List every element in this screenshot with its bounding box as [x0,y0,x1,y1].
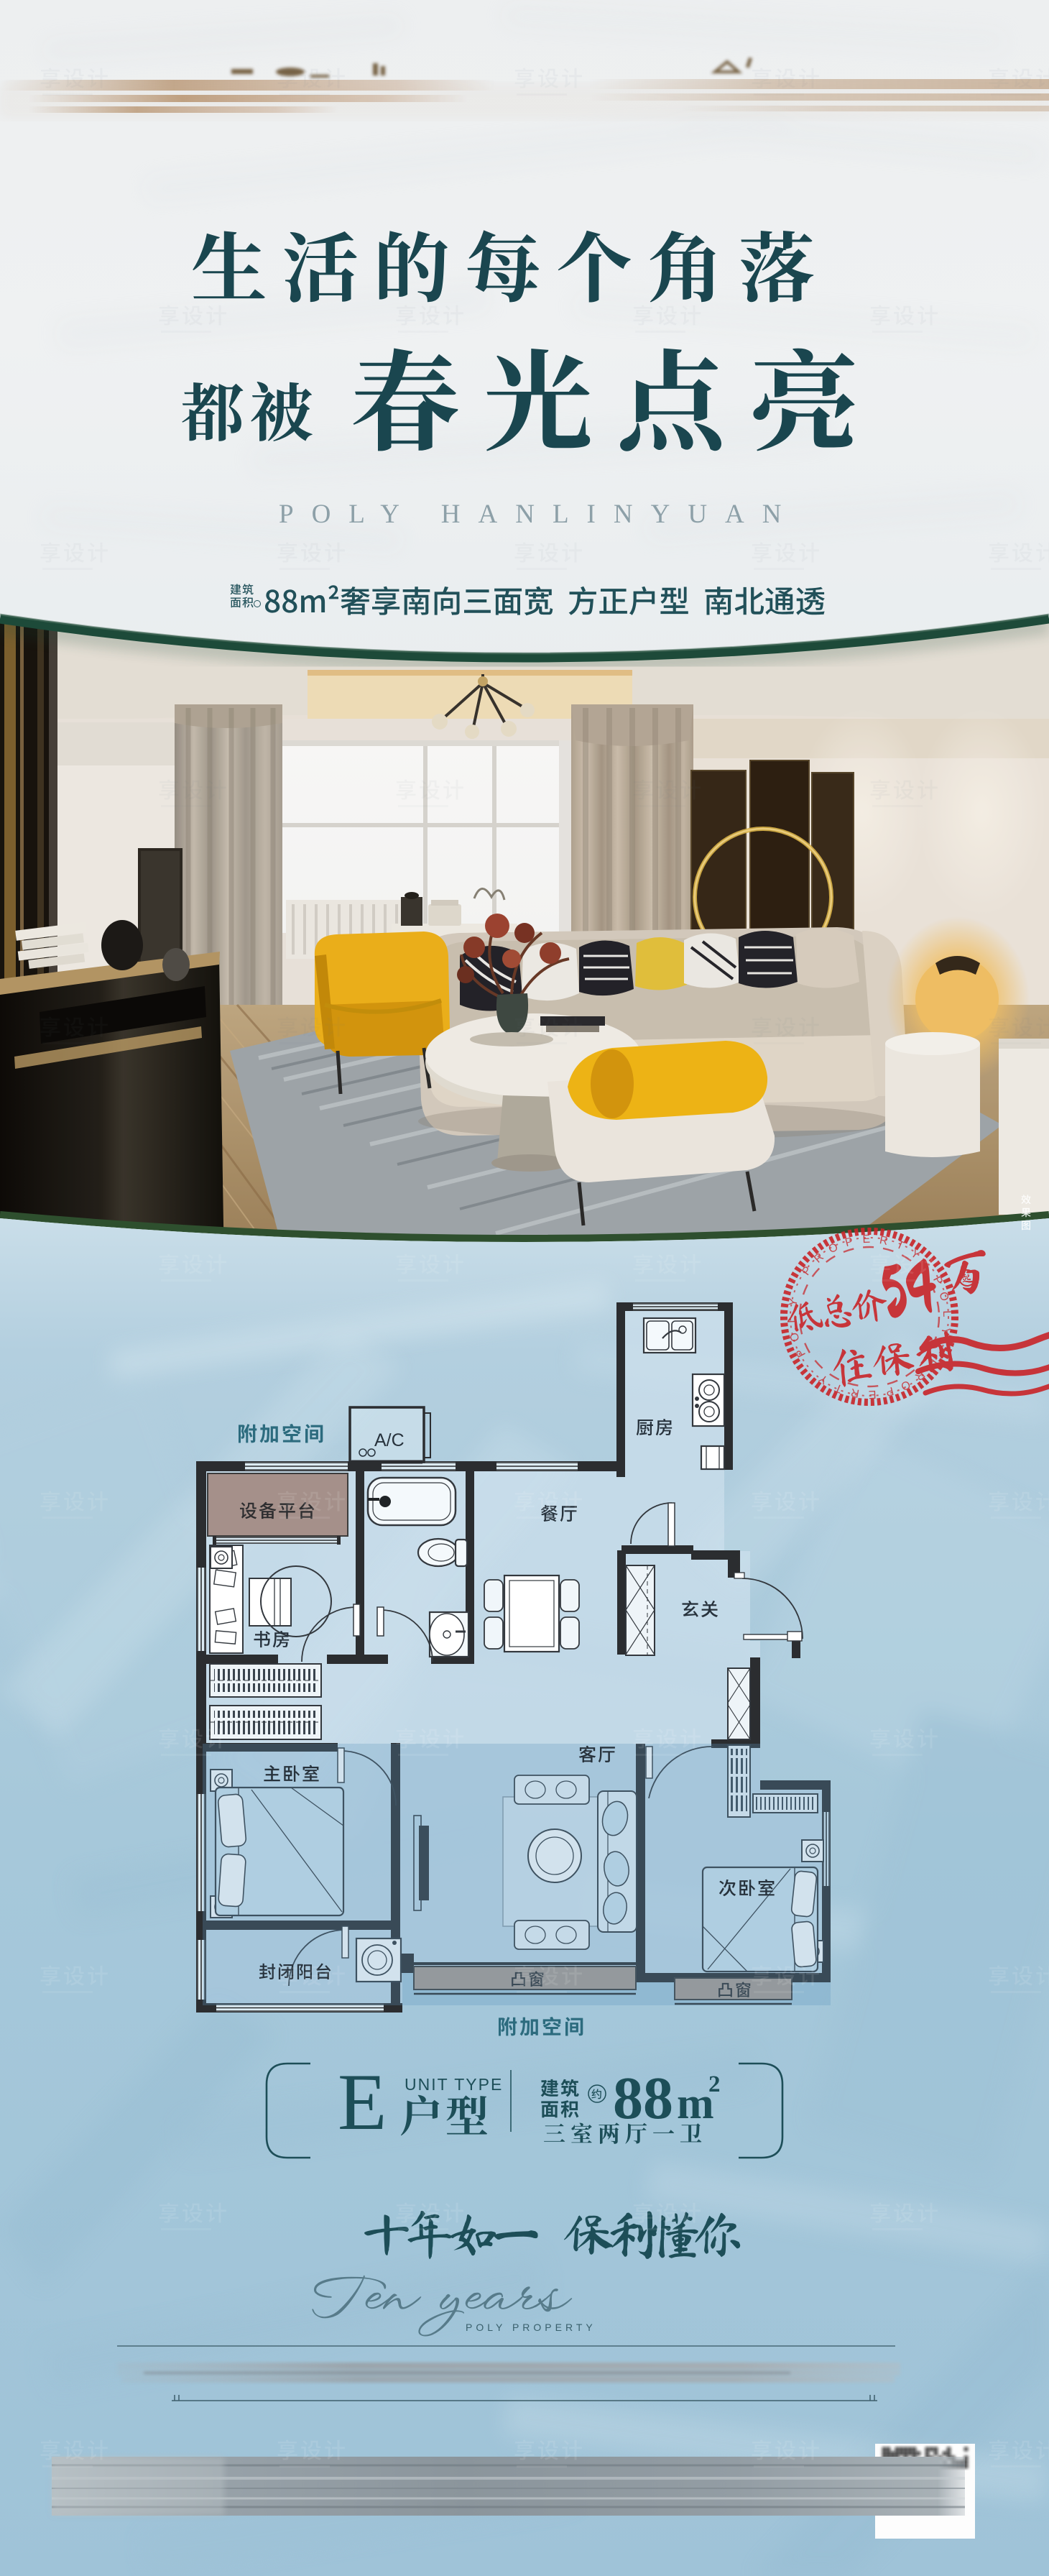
svg-text:POLY HANLINYUAN: POLY HANLINYUAN [279,500,799,529]
svg-text:A/C: A/C [374,1430,405,1450]
svg-text:POLY PROPERTY: POLY PROPERTY [466,2322,596,2333]
svg-text:2: 2 [708,2071,721,2097]
svg-text:E: E [862,1233,870,1246]
svg-text:E: E [869,1388,877,1400]
svg-text:UNIT TYPE: UNIT TYPE [405,2075,503,2094]
svg-text:E: E [338,2058,387,2147]
svg-text:L: L [941,1310,953,1317]
svg-text:88: 88 [613,2065,673,2132]
